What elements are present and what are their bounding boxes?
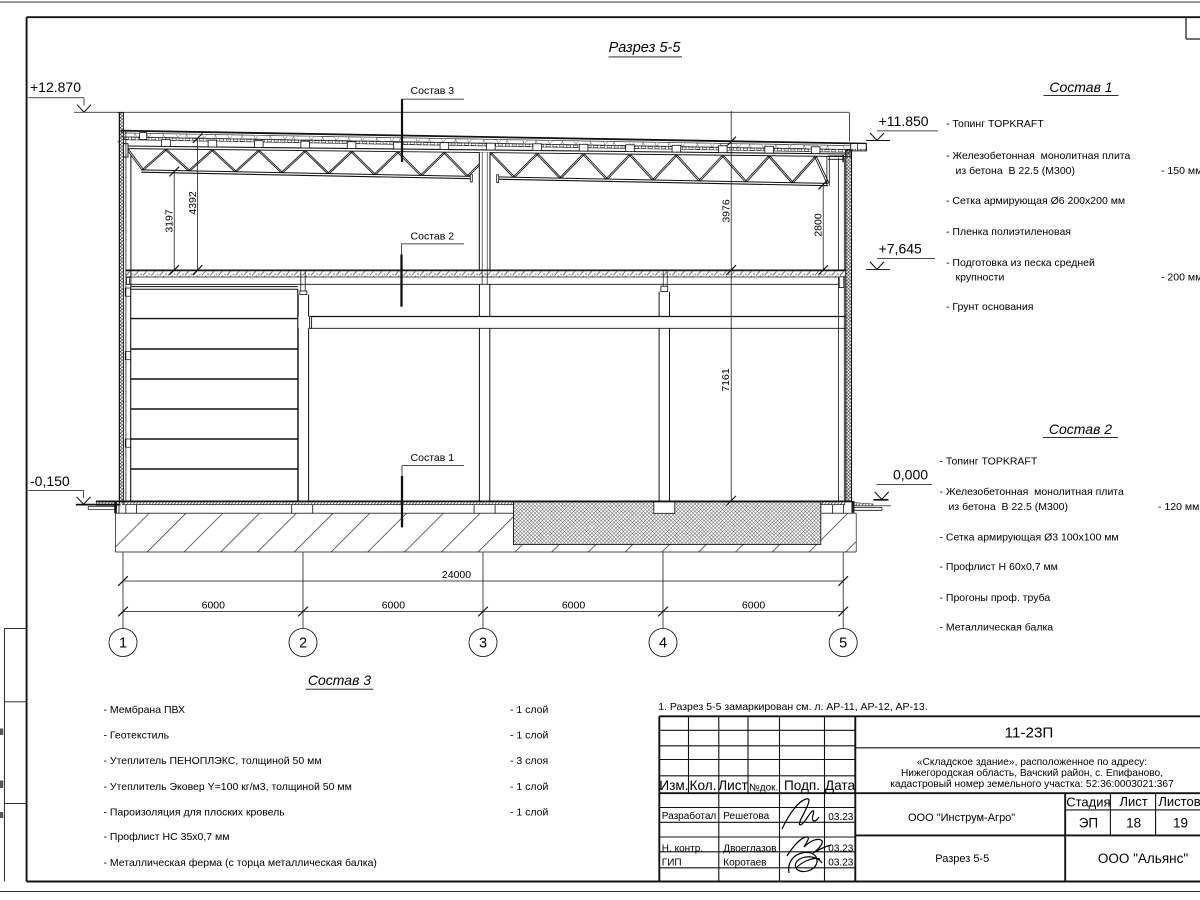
svg-text:Дата: Дата — [825, 778, 856, 793]
svg-text:Состав 1: Состав 1 — [411, 452, 455, 464]
svg-text:Разработал: Разработал — [662, 810, 717, 822]
svg-text:- Утеплитель Эковер Y=100 кг/м: - Утеплитель Эковер Y=100 кг/м3, толщино… — [104, 781, 352, 793]
svg-text:- Профлист Н 60х0,7 мм: - Профлист Н 60х0,7 мм — [940, 561, 1058, 573]
svg-text:- Прогоны проф. труба: - Прогоны проф. труба — [940, 592, 1051, 604]
svg-text:3197: 3197 — [164, 209, 176, 233]
svg-text:1: 1 — [119, 636, 127, 652]
svg-text:- 3 слоя: - 3 слоя — [510, 755, 548, 767]
svg-text:- Металлическая балка: - Металлическая балка — [940, 622, 1054, 634]
svg-text:Нижегородская область, Вачский: Нижегородская область, Вачский район, с.… — [901, 767, 1163, 779]
svg-text:из бетона В 22.5 (М300): из бетона В 22.5 (М300) — [956, 165, 1076, 177]
svg-text:5: 5 — [839, 636, 847, 652]
svg-text:6000: 6000 — [562, 599, 586, 611]
svg-text:4392: 4392 — [187, 191, 199, 215]
svg-text:Лист: Лист — [1119, 794, 1147, 809]
svg-text:- Утеплитель ПЕНОПЛЭКС, толщин: - Утеплитель ПЕНОПЛЭКС, толщиной 50 мм — [104, 755, 322, 767]
svg-text:- Геотекстиль: - Геотекстиль — [104, 730, 170, 742]
svg-text:- Железобетонная монолитная п: - Железобетонная монолитная плита — [940, 486, 1124, 498]
svg-text:Состав 3: Состав 3 — [411, 85, 455, 97]
svg-text:- Сетка армирующая Ø6 200х200: - Сетка армирующая Ø6 200х200 мм — [946, 195, 1125, 207]
svg-text:- Пароизоляция для плоских кро: - Пароизоляция для плоских кровель — [104, 806, 286, 818]
svg-text:Стадия: Стадия — [1066, 795, 1110, 810]
svg-text:крупности: крупности — [956, 272, 1005, 284]
svg-text:19: 19 — [1173, 815, 1188, 830]
svg-text:24000: 24000 — [442, 569, 471, 581]
svg-text:Разрез 5-5: Разрез 5-5 — [935, 853, 989, 865]
svg-text:Решетова: Решетова — [723, 811, 769, 822]
svg-text:Состав 2: Состав 2 — [1049, 421, 1112, 437]
svg-text:- Мембрана ПВХ: - Мембрана ПВХ — [104, 704, 186, 716]
svg-text:-0,150: -0,150 — [30, 473, 70, 489]
svg-text:- 150 мм: - 150 мм — [1161, 165, 1200, 177]
svg-text:- 200 мм: - 200 мм — [1161, 272, 1200, 284]
svg-text:- Железобетонная монолитная п: - Железобетонная монолитная плита — [946, 150, 1130, 162]
svg-text:- 1 слой: - 1 слой — [510, 704, 549, 716]
svg-text:Разрез 5-5: Разрез 5-5 — [609, 40, 682, 56]
svg-text:4: 4 — [659, 636, 667, 652]
svg-text:Состав 2: Состав 2 — [411, 231, 455, 243]
svg-text:- 1 слой: - 1 слой — [510, 781, 549, 793]
svg-text:ЭП: ЭП — [1079, 815, 1098, 830]
svg-text:6000: 6000 — [202, 599, 226, 611]
svg-text:03.23: 03.23 — [828, 843, 853, 854]
svg-text:6000: 6000 — [742, 599, 766, 611]
svg-text:Н. контр.: Н. контр. — [662, 843, 703, 854]
svg-text:- Металлическая ферма (с торца: - Металлическая ферма (с торца металличе… — [104, 857, 377, 869]
svg-text:ООО "Альянс": ООО "Альянс" — [1098, 851, 1188, 866]
svg-text:Изм.: Изм. — [659, 778, 688, 793]
svg-text:03.23: 03.23 — [828, 812, 853, 823]
svg-text:3976: 3976 — [720, 199, 732, 223]
svg-text:- Грунт основания: - Грунт основания — [946, 301, 1033, 313]
svg-text:- Профлист НС 35х0,7 мм: - Профлист НС 35х0,7 мм — [104, 831, 230, 843]
svg-text:ООО "Инструм-Агро": ООО "Инструм-Агро" — [908, 812, 1015, 824]
svg-text:- Подготовка из песка средней: - Подготовка из песка средней — [946, 257, 1095, 269]
svg-text:№док.: №док. — [749, 783, 778, 794]
svg-text:- Пленка полиэтиленовая: - Пленка полиэтиленовая — [946, 226, 1071, 238]
svg-text:- 1 слой: - 1 слой — [510, 730, 549, 742]
svg-text:1. Разрез 5-5 замаркирован см.: 1. Разрез 5-5 замаркирован см. л. АР-11,… — [658, 701, 927, 713]
svg-text:из бетона В 22.5 (М300): из бетона В 22.5 (М300) — [949, 501, 1069, 513]
svg-text:11-23П: 11-23П — [1005, 725, 1054, 742]
svg-text:«Складское здание», расположен: «Складское здание», расположенное по адр… — [917, 757, 1147, 768]
svg-text:кадастровый номер земельного у: кадастровый номер земельного участка: 52… — [890, 779, 1174, 790]
svg-text:18: 18 — [1126, 815, 1141, 830]
svg-text:- Топинг TOPKRAFT: - Топинг TOPKRAFT — [940, 455, 1038, 467]
svg-text:- Сетка армирующая Ø3 100х100: - Сетка армирующая Ø3 100х100 мм — [940, 532, 1119, 544]
svg-text:2: 2 — [299, 636, 307, 652]
svg-text:Двоеглазов: Двоеглазов — [723, 843, 776, 854]
svg-text:ГИП: ГИП — [662, 858, 682, 869]
svg-text:2800: 2800 — [812, 213, 824, 237]
svg-text:+12.870: +12.870 — [30, 79, 81, 95]
svg-text:Лист: Лист — [718, 778, 748, 793]
svg-text:- Топинг TOPKRAFT: - Топинг TOPKRAFT — [946, 118, 1044, 130]
svg-text:03.23: 03.23 — [828, 858, 853, 869]
svg-text:Коротаев: Коротаев — [723, 858, 766, 869]
svg-text:6000: 6000 — [382, 599, 406, 611]
svg-text:- 120 мм: - 120 мм — [1158, 501, 1199, 513]
svg-text:3: 3 — [479, 636, 487, 652]
svg-text:Подп.: Подп. — [784, 778, 820, 793]
svg-text:Состав 1: Состав 1 — [1049, 79, 1112, 95]
svg-text:+7,645: +7,645 — [879, 240, 922, 256]
svg-text:- 1 слой: - 1 слой — [510, 806, 549, 818]
svg-text:Листов: Листов — [1158, 794, 1200, 809]
svg-text:Кол.: Кол. — [690, 778, 717, 793]
svg-text:Состав 3: Состав 3 — [308, 672, 371, 688]
svg-text:+11.850: +11.850 — [879, 113, 929, 129]
svg-text:7161: 7161 — [720, 368, 732, 392]
svg-text:0,000: 0,000 — [893, 466, 928, 482]
